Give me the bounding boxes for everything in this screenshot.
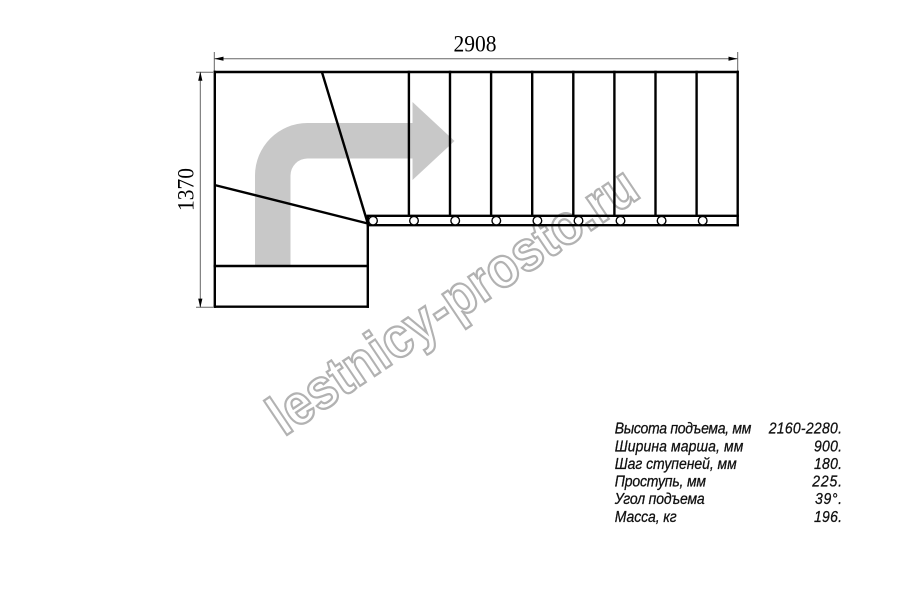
svg-text:2160-2280.: 2160-2280. — [768, 420, 842, 438]
svg-text:Проступь, мм: Проступь, мм — [615, 473, 707, 491]
svg-text:39°.: 39°. — [815, 490, 842, 508]
svg-text:Угол подъема: Угол подъема — [614, 490, 705, 508]
svg-text:2908: 2908 — [454, 32, 497, 58]
svg-text:180.: 180. — [814, 455, 842, 473]
svg-text:Высота подъема, мм: Высота подъема, мм — [615, 420, 752, 438]
svg-text:Ширина марша, мм: Ширина марша, мм — [615, 437, 744, 455]
svg-text:225.: 225. — [811, 473, 842, 491]
svg-text:1370: 1370 — [174, 168, 200, 211]
svg-text:196.: 196. — [814, 508, 842, 526]
svg-text:Шаг ступеней, мм: Шаг ступеней, мм — [615, 455, 738, 473]
svg-text:Масса, кг: Масса, кг — [615, 508, 677, 526]
svg-text:900.: 900. — [814, 437, 842, 455]
